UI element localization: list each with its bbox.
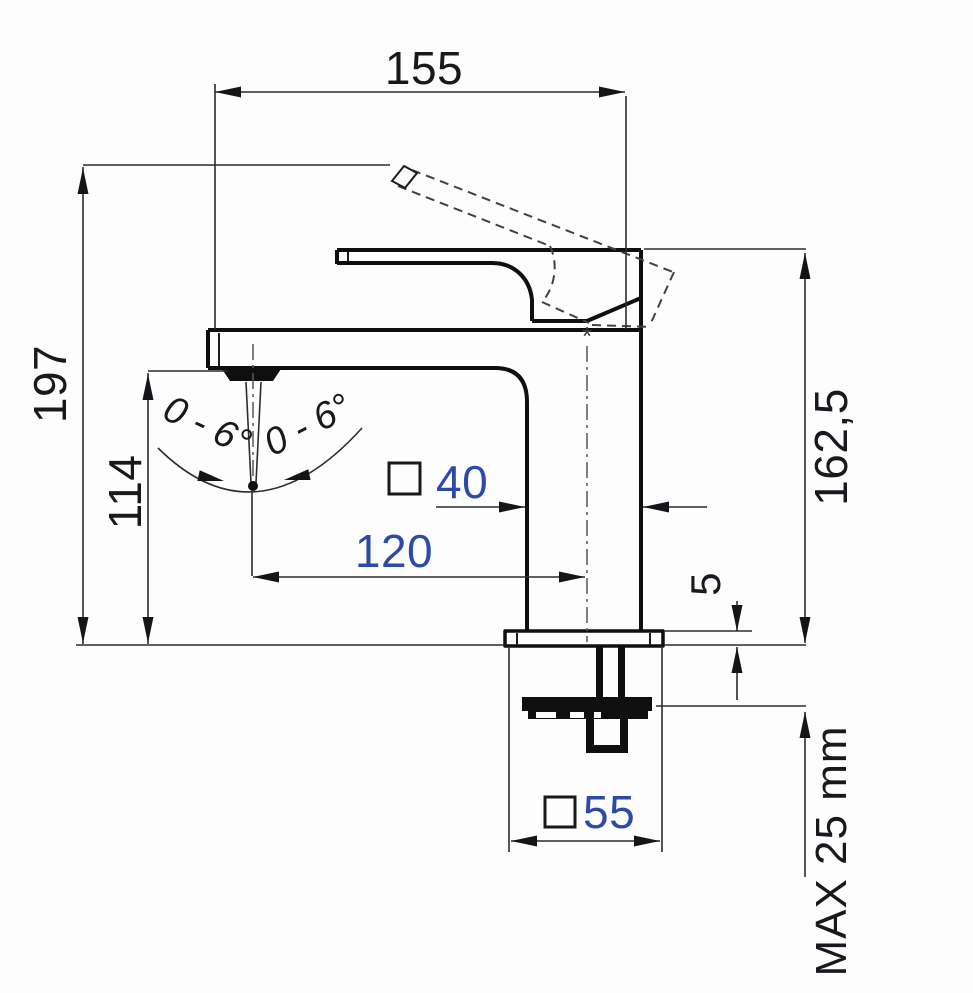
square-section-symbol-55 xyxy=(545,797,575,827)
arrowhead xyxy=(559,572,585,583)
footnote-asterisk: * xyxy=(582,321,592,351)
gasket-gap-2 xyxy=(570,712,584,718)
dim-5-label: 5 xyxy=(682,572,729,596)
raised-lever-top-edge xyxy=(412,170,673,272)
arrowhead xyxy=(643,502,669,513)
arrowhead xyxy=(599,87,625,98)
gasket-gap-1 xyxy=(536,712,556,718)
raised-lever-back-edge xyxy=(650,272,674,325)
spray-pivot-dot xyxy=(248,481,258,491)
raised-lever-front-arc xyxy=(542,246,555,302)
arrowhead xyxy=(143,617,154,643)
square-section-symbol-40 xyxy=(389,463,420,494)
centerlines xyxy=(158,344,587,642)
arrowhead xyxy=(499,502,525,513)
arrowhead xyxy=(78,168,89,194)
dim-max-panel-label: MAX 25 mm xyxy=(807,725,856,976)
arrowhead xyxy=(215,87,241,98)
threaded-shank-right-wall xyxy=(618,646,625,698)
technical-drawing-page: 155 197 114 162,5 120 40 55 5 MAX 25 mm … xyxy=(0,0,973,993)
gasket-gap-3 xyxy=(594,712,601,718)
lever-neck-curve xyxy=(492,263,532,321)
arrowhead xyxy=(253,572,279,583)
aerator-outlet xyxy=(222,369,281,381)
dim-162-label: 162,5 xyxy=(805,388,857,506)
dim-155-label: 155 xyxy=(385,42,463,94)
arrowhead xyxy=(732,647,743,673)
raised-lever-tip-cap xyxy=(392,166,417,188)
swivel-angle-label-left: 0 - 6° xyxy=(157,388,257,465)
arrowhead xyxy=(800,253,811,279)
arrowhead xyxy=(78,617,89,643)
arrowhead xyxy=(732,605,743,631)
arrowhead xyxy=(634,836,660,847)
fixing-nut-bottom xyxy=(586,745,628,753)
dim-55-label: 55 xyxy=(583,786,635,838)
base-plate xyxy=(505,631,663,646)
arrowhead xyxy=(800,617,811,643)
dim-120-label: 120 xyxy=(355,525,433,577)
dim-40-label: 40 xyxy=(436,456,488,508)
swivel-angle-label-right: 0 - 6° xyxy=(257,386,357,465)
cartridge-back-slope xyxy=(587,298,641,321)
dim-114-label: 114 xyxy=(99,455,151,530)
arrowhead xyxy=(511,836,537,847)
threaded-shank-left-wall xyxy=(596,646,603,698)
dim-197-label: 197 xyxy=(24,345,76,423)
swivel-arc-arrowhead-right xyxy=(283,469,311,485)
arrowhead xyxy=(143,374,154,400)
faucet-dimension-drawing: 155 197 114 162,5 120 40 55 5 MAX 25 mm … xyxy=(0,0,973,993)
fixing-washer xyxy=(522,697,652,711)
